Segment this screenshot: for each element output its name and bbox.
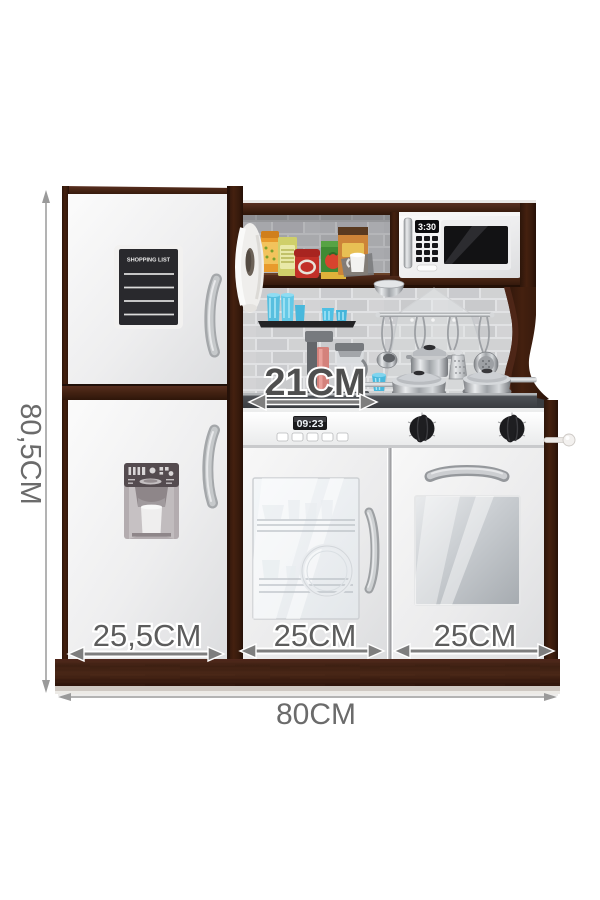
svg-text:21CM: 21CM (264, 362, 365, 404)
svg-text:09:23: 09:23 (297, 418, 324, 430)
svg-text:80CM: 80CM (276, 698, 356, 731)
svg-text:80,5CM: 80,5CM (14, 403, 46, 505)
svg-text:25,5CM: 25,5CM (93, 618, 202, 653)
svg-text:3:30: 3:30 (418, 222, 436, 232)
svg-text:SHOPPING LIST: SHOPPING LIST (127, 258, 171, 264)
